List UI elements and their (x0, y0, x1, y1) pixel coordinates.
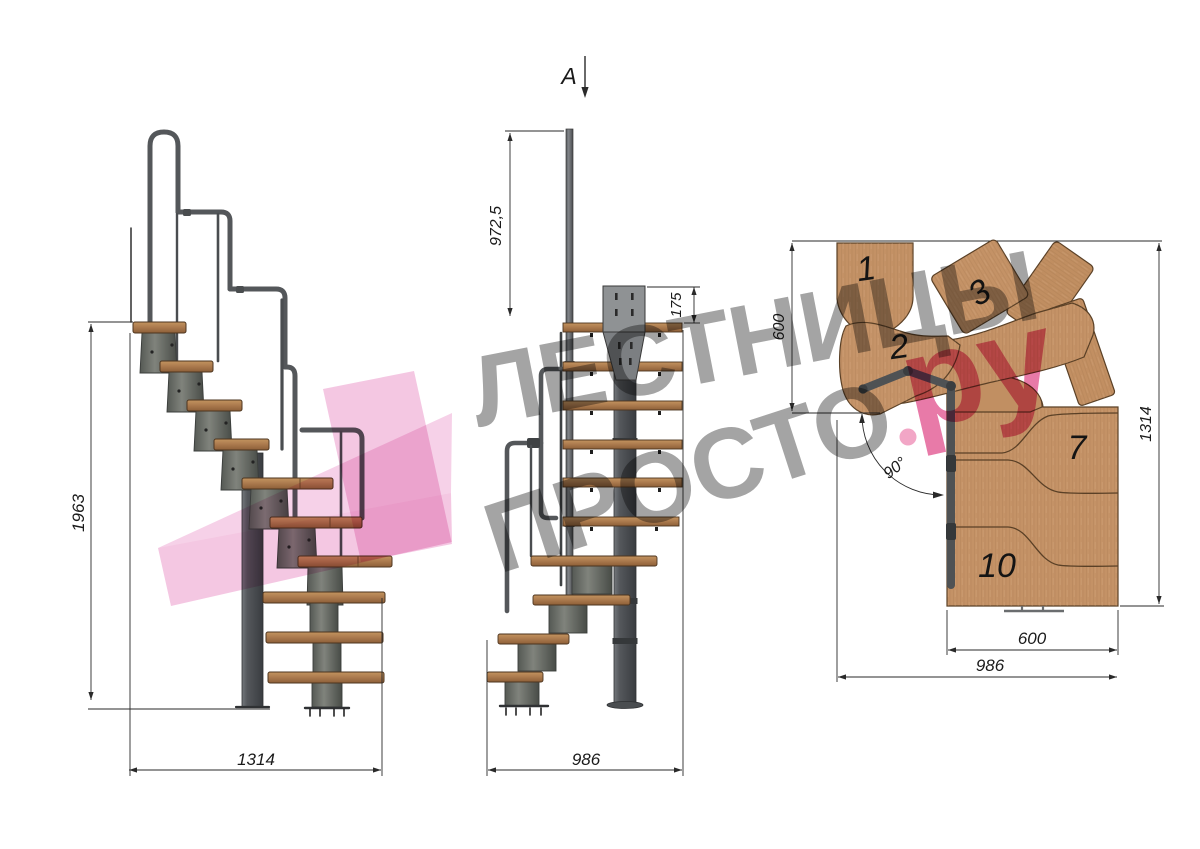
svg-text:986: 986 (572, 750, 601, 769)
svg-text:972,5: 972,5 (488, 206, 505, 246)
svg-text:600: 600 (1018, 629, 1047, 648)
svg-text:986: 986 (976, 656, 1005, 675)
svg-text:10: 10 (978, 547, 1016, 585)
svg-text:A: A (559, 63, 576, 89)
svg-text:1314: 1314 (237, 750, 275, 769)
svg-text:1314: 1314 (1138, 406, 1155, 442)
svg-text:7: 7 (1068, 429, 1088, 467)
svg-text:1963: 1963 (69, 494, 88, 532)
